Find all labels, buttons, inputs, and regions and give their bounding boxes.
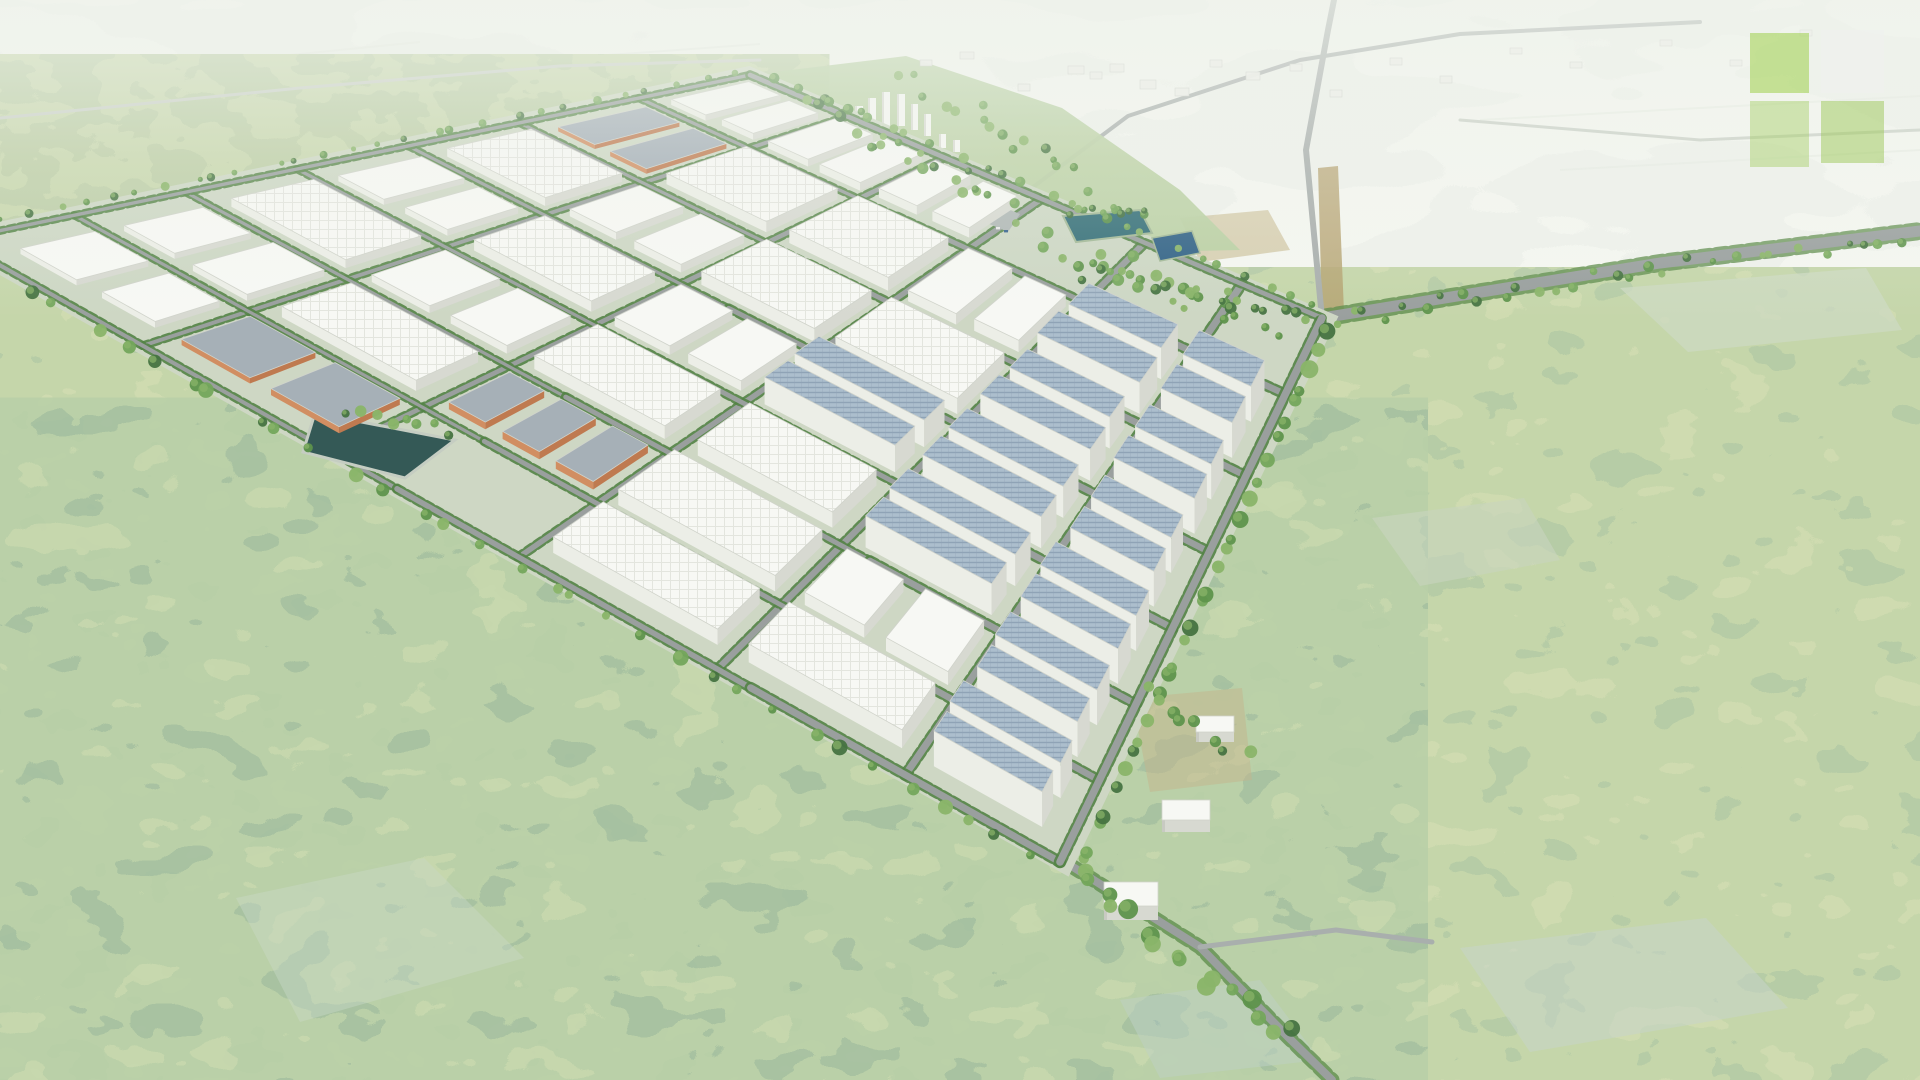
light-wash [0, 0, 1920, 1080]
logo-tile [1750, 101, 1809, 167]
scene-canvas [0, 0, 1920, 1080]
logo-tile [1821, 101, 1884, 163]
logo-tile [1821, 30, 1884, 93]
masterplan-render [0, 0, 1920, 1080]
logo-tile [1750, 33, 1809, 93]
